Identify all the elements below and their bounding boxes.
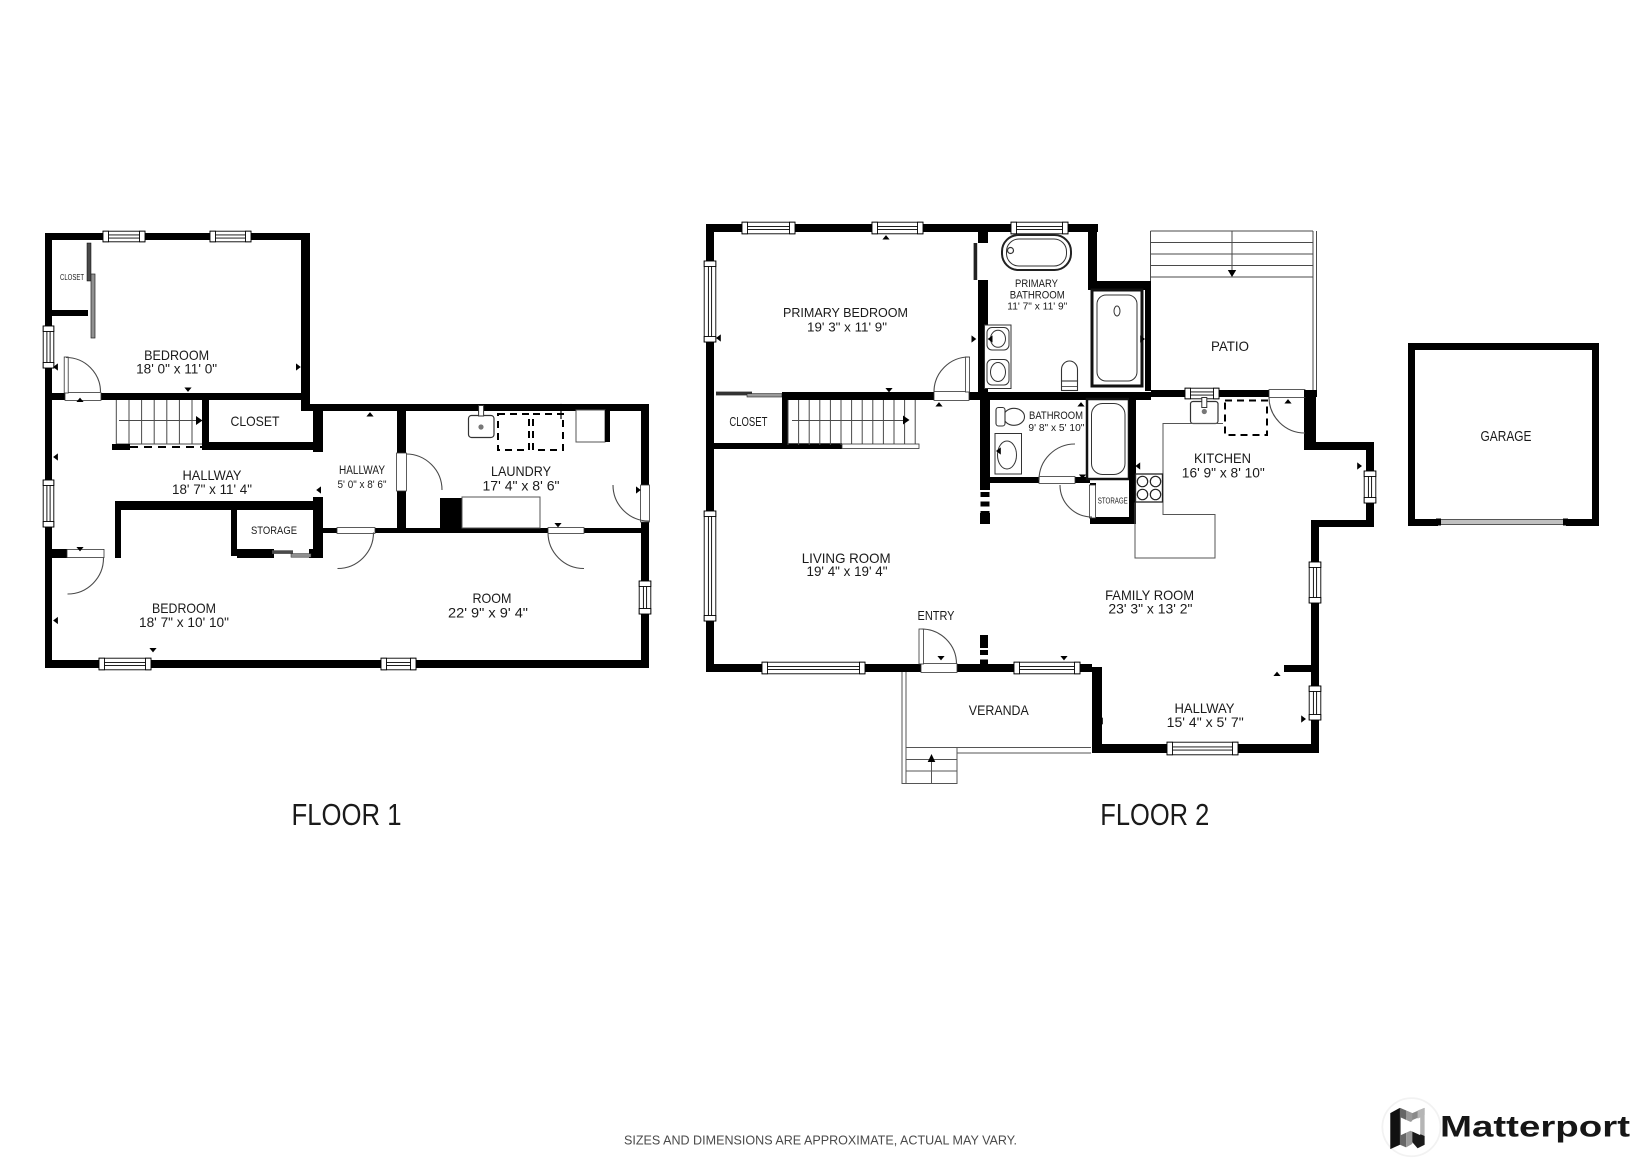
svg-text:18' 0" x 11' 0": 18' 0" x 11' 0" (136, 362, 217, 377)
svg-text:STORAGE: STORAGE (251, 525, 297, 537)
svg-text:HALLWAY: HALLWAY (183, 467, 243, 483)
svg-text:18' 7" x 10' 10": 18' 7" x 10' 10" (139, 615, 229, 630)
svg-text:ROOM: ROOM (473, 590, 512, 606)
svg-text:STORAGE: STORAGE (1098, 497, 1128, 506)
svg-text:PATIO: PATIO (1211, 338, 1249, 354)
svg-text:15' 4" x 5' 7": 15' 4" x 5' 7" (1167, 715, 1244, 730)
svg-text:BATHROOM: BATHROOM (1029, 410, 1083, 422)
svg-text:9' 8" x 5' 10": 9' 8" x 5' 10" (1028, 422, 1084, 434)
svg-text:5' 0" x 8' 6": 5' 0" x 8' 6" (338, 479, 387, 491)
svg-text:22' 9" x 9' 4": 22' 9" x 9' 4" (448, 606, 528, 621)
svg-text:HALLWAY: HALLWAY (339, 465, 385, 477)
svg-text:19' 3" x 11' 9": 19' 3" x 11' 9" (807, 320, 887, 335)
svg-text:VERANDA: VERANDA (969, 702, 1030, 718)
svg-text:11' 7" x 11' 9": 11' 7" x 11' 9" (1007, 301, 1067, 313)
svg-text:ENTRY: ENTRY (918, 609, 956, 623)
svg-text:SIZES AND DIMENSIONS ARE APPRO: SIZES AND DIMENSIONS ARE APPROXIMATE, AC… (624, 1134, 1017, 1148)
svg-text:FLOOR 2: FLOOR 2 (1100, 797, 1209, 832)
svg-text:17' 4" x 8' 6": 17' 4" x 8' 6" (483, 479, 560, 494)
svg-text:16' 9" x 8' 10": 16' 9" x 8' 10" (1182, 466, 1265, 481)
svg-text:PRIMARY: PRIMARY (1015, 278, 1059, 290)
svg-text:GARAGE: GARAGE (1481, 428, 1532, 445)
svg-text:KITCHEN: KITCHEN (1194, 450, 1251, 466)
svg-text:CLOSET: CLOSET (729, 414, 767, 429)
svg-text:CLOSET: CLOSET (60, 273, 84, 282)
svg-text:CLOSET: CLOSET (231, 413, 280, 429)
svg-text:Matterport: Matterport (1440, 1111, 1630, 1144)
svg-text:BEDROOM: BEDROOM (152, 600, 216, 616)
svg-text:FLOOR 1: FLOOR 1 (292, 797, 402, 832)
svg-text:LAUNDRY: LAUNDRY (491, 463, 552, 479)
svg-text:19' 4" x 19' 4": 19' 4" x 19' 4" (807, 564, 888, 579)
svg-text:HALLWAY: HALLWAY (1175, 700, 1236, 716)
svg-text:23' 3" x 13' 2": 23' 3" x 13' 2" (1108, 602, 1192, 617)
svg-text:18' 7" x 11' 4": 18' 7" x 11' 4" (172, 482, 252, 497)
svg-text:PRIMARY BEDROOM: PRIMARY BEDROOM (783, 305, 908, 320)
